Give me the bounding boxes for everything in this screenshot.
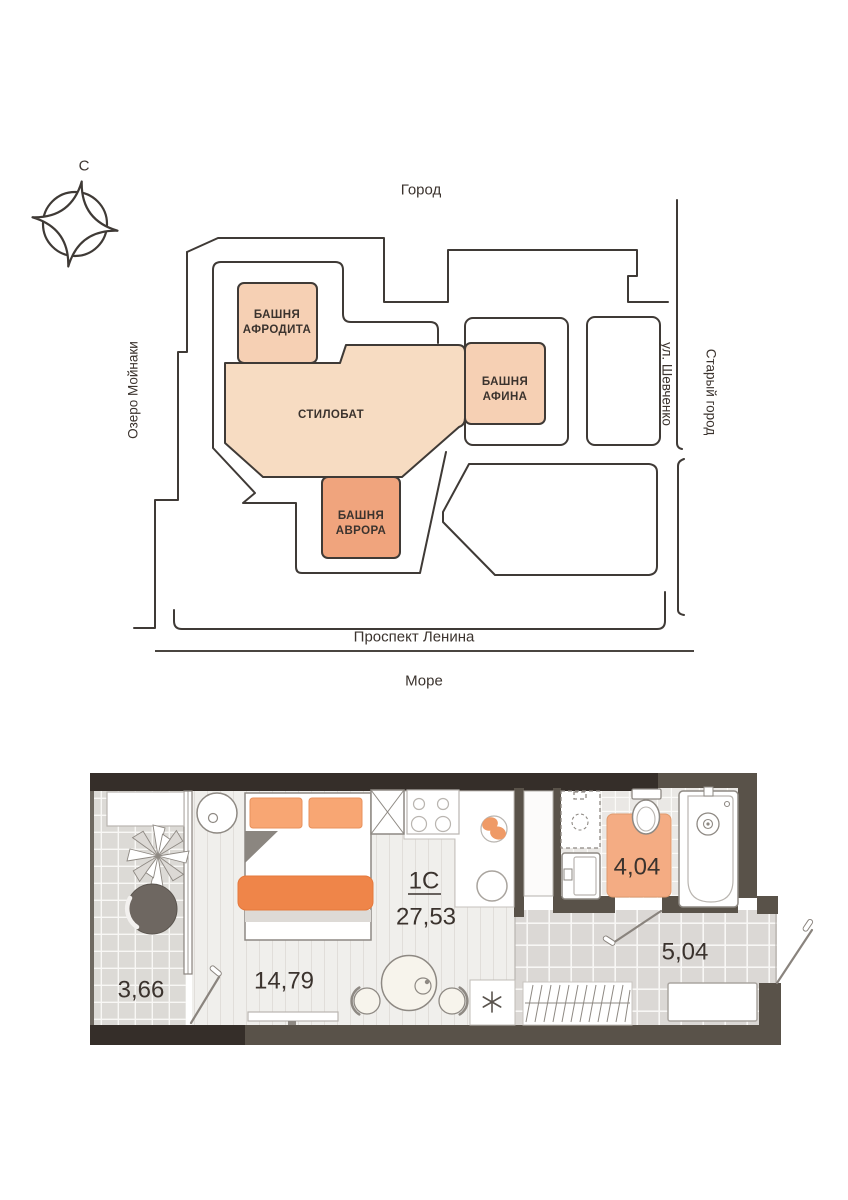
stylobate-label: СТИЛОБАТ [298,409,364,421]
compass-north-label: С [79,158,90,175]
chair [439,988,465,1014]
apartment-type-label: 1С [409,868,440,895]
building-tower-aphrodite [238,283,317,363]
utility-shaft [524,791,553,896]
label-street-shevchenko: ул. Шевченко [660,342,675,426]
living-room-area: 14,79 [254,968,314,995]
label-city: Город [401,182,442,199]
pillow [250,798,302,828]
toilet [632,789,661,834]
balcony-chair [127,884,177,934]
bathroom-sink-dashed [561,791,600,848]
washer-spot [470,980,515,1025]
chair [354,988,380,1014]
tower-athena-label-2: АФИНА [483,391,528,403]
tower-aurora-label-2: АВРОРА [336,525,386,537]
bathtub [679,787,738,907]
bed [238,793,373,940]
tower-aurora-label-1: БАШНЯ [338,510,384,522]
balcony-outer-glazing [90,791,94,1025]
label-sea: Море [405,673,443,690]
balcony-sill-box [107,792,184,826]
entrance-door [776,914,814,983]
site-buildings: БАШНЯ АФРОДИТА БАШНЯ АФИНА БАШНЯ АВРОРА … [225,283,545,558]
stove [407,790,459,834]
tower-aphrodite-label-1: БАШНЯ [254,309,300,321]
site-plan: С БАШНЯ АФРОДИТА БАШНЯ АФИНА БАШНЯ [26,158,719,690]
floorplan-page: С БАШНЯ АФРОДИТА БАШНЯ АФИНА БАШНЯ [0,0,848,1200]
hallway-area: 5,04 [662,939,709,966]
kitchen-sink [477,871,507,901]
pillow [309,798,362,828]
floor-plan: 1С 27,53 14,79 3,66 4,04 5,04 [90,773,814,1045]
closet [371,790,404,834]
washing-machine [562,853,600,899]
compass-icon: С [26,158,124,274]
bedside-table [197,793,237,833]
label-lake: Озеро Мойнаки [126,341,141,439]
tower-aphrodite-label-2: АФРОДИТА [243,324,311,336]
bathroom-area: 4,04 [614,854,661,881]
total-area-label: 27,53 [396,904,456,931]
wardrobe-rail [523,982,632,1025]
label-avenue: Проспект Ленина [354,629,475,646]
label-old-town: Старый город [704,349,719,436]
tower-athena-label-1: БАШНЯ [482,376,528,388]
balcony-area: 3,66 [118,977,165,1004]
hall-cabinet [668,983,757,1021]
blanket [238,876,373,910]
plan-graphic: С БАШНЯ АФРОДИТА БАШНЯ АФИНА БАШНЯ [0,0,848,1200]
